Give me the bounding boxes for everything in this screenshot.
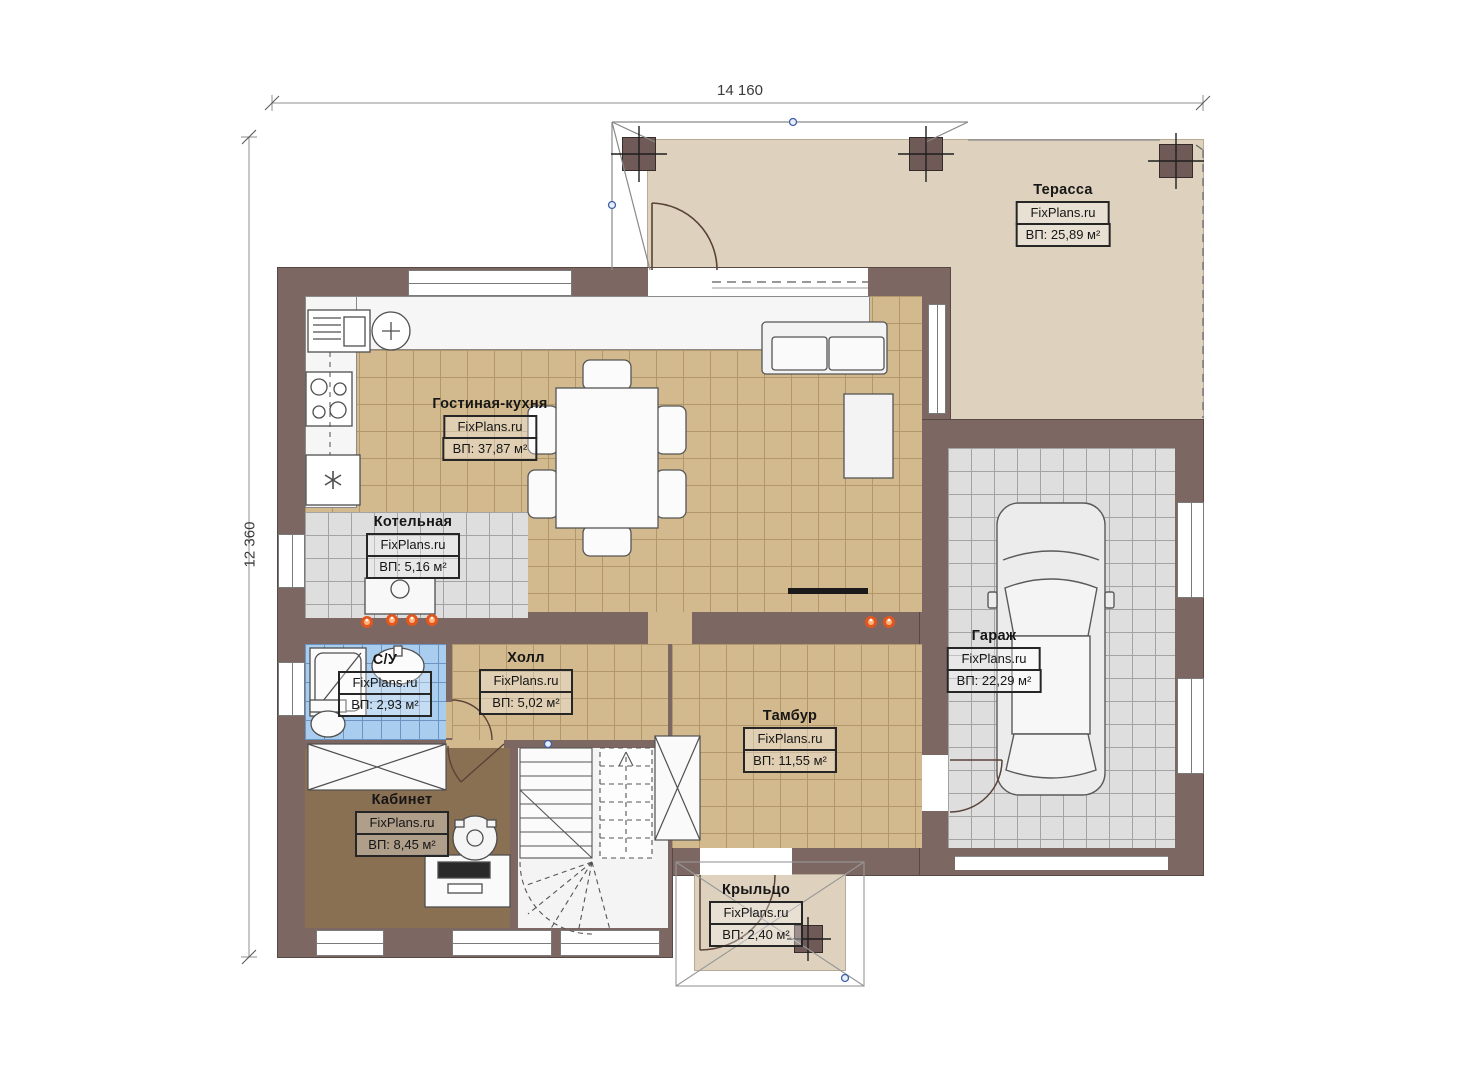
staircase-floor bbox=[518, 748, 668, 928]
room-area: ВП: 11,55 м² bbox=[743, 749, 837, 773]
room-brand: FixPlans.ru bbox=[366, 533, 460, 557]
window-left-boiler bbox=[278, 534, 305, 588]
window-garage-2 bbox=[1177, 678, 1204, 774]
window-bottom-1 bbox=[452, 930, 552, 956]
room-name: Кабинет bbox=[372, 792, 433, 808]
room-brand: FixPlans.ru bbox=[479, 669, 573, 693]
room-name: Крыльцо bbox=[722, 882, 790, 898]
terrace-column-right bbox=[1160, 145, 1192, 177]
room-label-hall: Холл FixPlans.ru ВП: 5,02 м² bbox=[479, 650, 573, 715]
window-living-terrace bbox=[928, 304, 946, 414]
room-label-porch: Крыльцо FixPlans.ru ВП: 2,40 м² bbox=[709, 882, 803, 947]
terrace-glass-opening bbox=[712, 268, 868, 296]
terrace-column-left bbox=[623, 138, 655, 170]
window-bottom-office bbox=[316, 930, 384, 956]
terrace-column-middle bbox=[910, 138, 942, 170]
room-label-terrace: Терасса FixPlans.ru ВП: 25,89 м² bbox=[1016, 182, 1111, 247]
window-garage-1 bbox=[1177, 502, 1204, 598]
room-area: ВП: 5,16 м² bbox=[366, 555, 460, 579]
room-name: Гараж bbox=[972, 628, 1017, 644]
dimension-height-label: 12 360 bbox=[242, 495, 259, 595]
bathroom-door-opening bbox=[446, 702, 452, 738]
garage-door-opening bbox=[922, 755, 948, 811]
room-area: ВП: 2,93 м² bbox=[338, 693, 432, 717]
room-brand: FixPlans.ru bbox=[947, 647, 1041, 671]
room-name: Терасса bbox=[1033, 182, 1093, 198]
room-label-garage: Гараж FixPlans.ru ВП: 22,29 м² bbox=[947, 628, 1042, 693]
room-brand: FixPlans.ru bbox=[338, 671, 432, 695]
window-left-bathroom bbox=[278, 662, 305, 716]
window-bottom-2 bbox=[560, 930, 660, 956]
room-name: Гостиная-кухня bbox=[432, 396, 547, 412]
kitchen-counter-left bbox=[305, 296, 357, 508]
room-label-bathroom: С/У FixPlans.ru ВП: 2,93 м² bbox=[338, 652, 432, 717]
room-area: ВП: 22,29 м² bbox=[947, 669, 1042, 693]
room-area: ВП: 8,45 м² bbox=[355, 833, 449, 857]
office-door-opening bbox=[446, 740, 504, 748]
room-name: Холл bbox=[507, 650, 545, 666]
room-name: Котельная bbox=[374, 514, 453, 530]
room-label-vestibule: Тамбур FixPlans.ru ВП: 11,55 м² bbox=[743, 708, 837, 773]
room-area: ВП: 37,87 м² bbox=[443, 437, 538, 461]
room-brand: FixPlans.ru bbox=[355, 811, 449, 835]
room-brand: FixPlans.ru bbox=[443, 415, 537, 439]
garage-gate bbox=[955, 856, 1168, 870]
room-label-office: Кабинет FixPlans.ru ВП: 8,45 м² bbox=[355, 792, 449, 857]
living-hall-opening bbox=[648, 612, 692, 644]
room-label-boiler-room: Котельная FixPlans.ru ВП: 5,16 м² bbox=[366, 514, 460, 579]
dimension-width-label: 14 160 bbox=[690, 82, 790, 99]
room-brand: FixPlans.ru bbox=[743, 727, 837, 751]
room-area: ВП: 2,40 м² bbox=[709, 923, 803, 947]
room-name: Тамбур bbox=[763, 708, 817, 724]
floor-plan-canvas: 14 160 12 360 bbox=[0, 0, 1473, 1080]
room-label-living-kitchen: Гостиная-кухня FixPlans.ru ВП: 37,87 м² bbox=[432, 396, 547, 461]
kitchen-counter-top bbox=[305, 296, 870, 350]
room-area: ВП: 5,02 м² bbox=[479, 691, 573, 715]
room-name: С/У bbox=[373, 652, 397, 668]
front-door-opening bbox=[700, 848, 792, 875]
window-top-kitchen bbox=[408, 270, 572, 296]
room-brand: FixPlans.ru bbox=[1016, 201, 1110, 225]
room-brand: FixPlans.ru bbox=[709, 901, 803, 925]
terrace-door-opening bbox=[648, 268, 712, 296]
room-area: ВП: 25,89 м² bbox=[1016, 223, 1111, 247]
